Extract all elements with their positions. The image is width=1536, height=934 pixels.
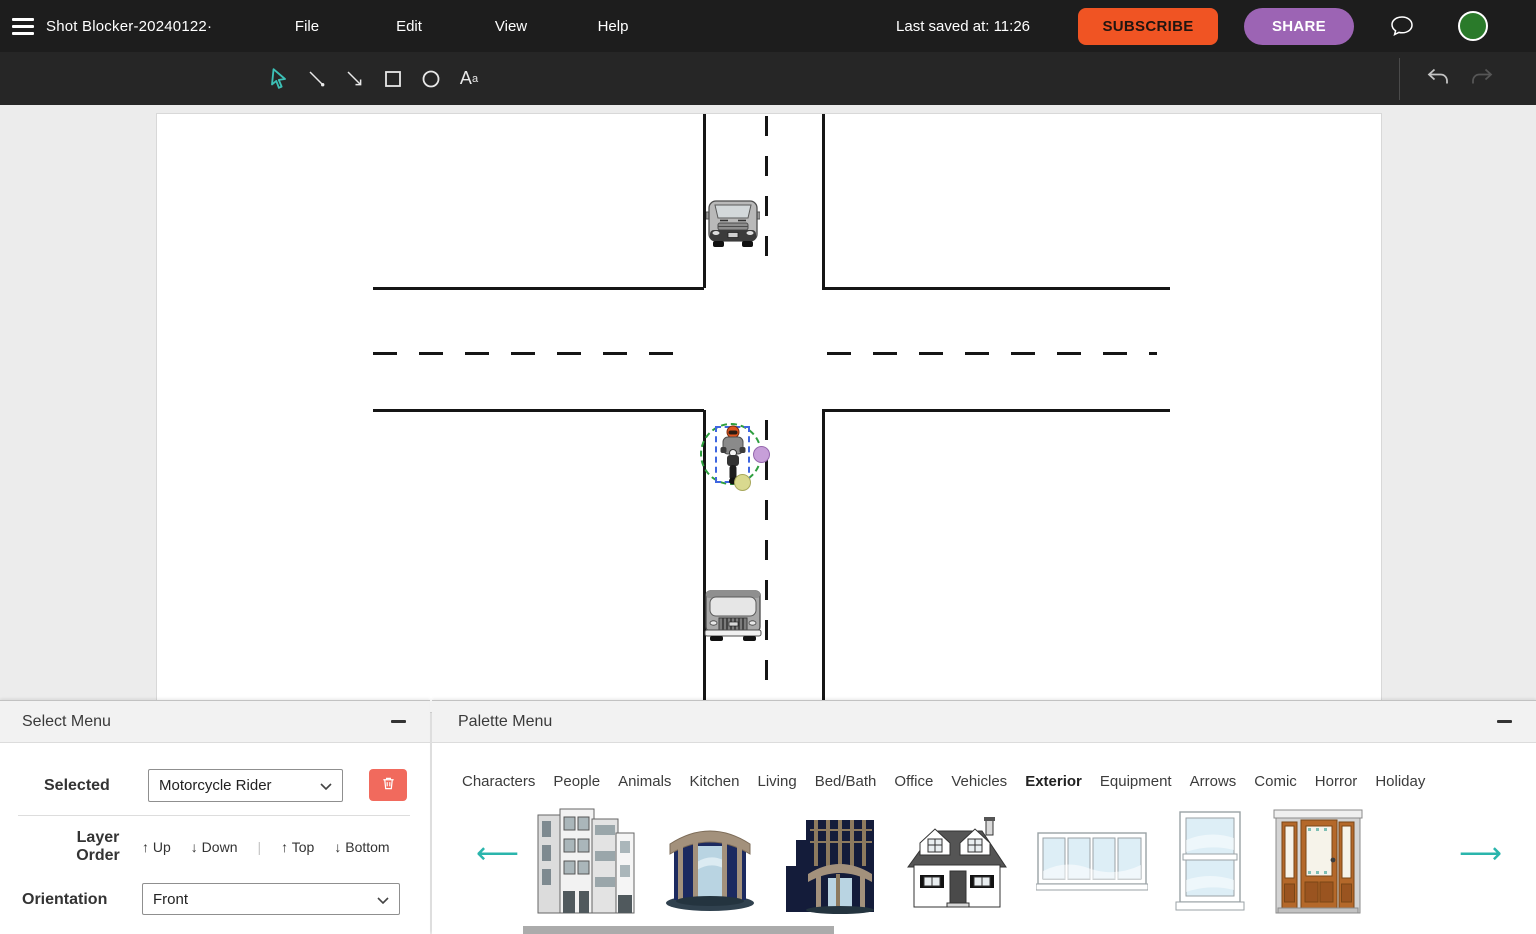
select-menu-header: Select Menu <box>0 701 430 743</box>
palette-category-bedbath[interactable]: Bed/Bath <box>815 773 877 790</box>
palette-item-art-deco-building[interactable] <box>782 808 878 914</box>
orientation-label: Orientation <box>22 891 107 909</box>
layer-order-label: Layer Order <box>68 829 128 865</box>
palette-category-arrows[interactable]: Arrows <box>1190 773 1237 790</box>
chat-bubble-icon[interactable] <box>1390 14 1416 38</box>
palette-menu-minimize-button[interactable] <box>1497 720 1512 723</box>
menu-help[interactable]: Help <box>562 18 664 35</box>
select-tool-icon[interactable] <box>266 64 292 94</box>
menu-bar: File Edit View Help <box>256 18 664 35</box>
palette-category-living[interactable]: Living <box>757 773 796 790</box>
ellipse-tool-icon[interactable] <box>418 64 444 94</box>
toolbar-divider <box>1399 58 1400 100</box>
top-bar: Shot Blocker-20240122· File Edit View He… <box>0 0 1536 52</box>
truck-object[interactable] <box>704 584 762 646</box>
selected-label: Selected <box>44 777 110 795</box>
palette-category-people[interactable]: People <box>553 773 600 790</box>
redo-icon[interactable] <box>1470 67 1496 91</box>
palette-category-comic[interactable]: Comic <box>1254 773 1297 790</box>
hamburger-menu-icon[interactable] <box>0 0 46 52</box>
palette-category-horror[interactable]: Horror <box>1315 773 1358 790</box>
palette-item-round-entrance-building[interactable] <box>664 810 756 912</box>
road-edge <box>822 409 1170 412</box>
layer-up-button[interactable]: ↑ Up <box>142 839 171 855</box>
palette-item-apartment-buildings[interactable] <box>532 807 638 915</box>
last-saved-status: Last saved at: 11:26 <box>896 18 1030 35</box>
palette-category-animals[interactable]: Animals <box>618 773 671 790</box>
select-menu-minimize-button[interactable] <box>391 720 406 723</box>
text-tool-icon[interactable]: Aa <box>456 64 482 94</box>
arrow-tool-icon[interactable] <box>342 64 368 94</box>
palette-category-vehicles[interactable]: Vehicles <box>951 773 1007 790</box>
selected-object-dropdown[interactable]: Motorcycle Rider <box>148 769 343 802</box>
palette-item-wide-window[interactable] <box>1036 831 1148 891</box>
palette-category-characters[interactable]: Characters <box>462 773 535 790</box>
subscribe-button[interactable]: SUBSCRIBE <box>1078 8 1218 45</box>
palette-category-kitchen[interactable]: Kitchen <box>689 773 739 790</box>
palette-menu-header: Palette Menu <box>432 701 1536 743</box>
road-center-dash <box>373 352 691 355</box>
selection-handle-rotate[interactable] <box>753 446 770 463</box>
selection-handle-scale[interactable] <box>734 474 751 491</box>
trash-icon <box>381 776 396 794</box>
palette-item-suburban-house[interactable] <box>904 813 1010 909</box>
layer-bottom-button[interactable]: ↓ Bottom <box>334 839 389 855</box>
palette-item-double-hung-window[interactable] <box>1174 810 1246 912</box>
palette-category-holiday[interactable]: Holiday <box>1375 773 1425 790</box>
road-edge <box>822 114 825 288</box>
chevron-down-icon <box>320 777 332 794</box>
palette-category-equipment[interactable]: Equipment <box>1100 773 1172 790</box>
palette-category-row: Characters People Animals Kitchen Living… <box>462 773 1425 790</box>
van-object[interactable] <box>706 196 760 253</box>
rectangle-tool-icon[interactable] <box>380 64 406 94</box>
palette-category-office[interactable]: Office <box>894 773 933 790</box>
layer-down-button[interactable]: ↓ Down <box>191 839 238 855</box>
road-center-dash <box>765 420 768 714</box>
palette-item-strip <box>532 801 1452 921</box>
palette-menu-panel: Palette Menu Characters People Animals K… <box>432 700 1536 934</box>
drawing-toolbar: Aa <box>0 52 1536 105</box>
menu-view[interactable]: View <box>460 18 562 35</box>
road-center-dash <box>765 116 768 276</box>
palette-scrollbar-thumb[interactable] <box>523 926 834 934</box>
palette-prev-arrow[interactable]: ⟵ <box>476 839 519 869</box>
divider: | <box>257 839 261 855</box>
palette-item-front-door[interactable] <box>1272 808 1364 914</box>
undo-icon[interactable] <box>1426 67 1452 91</box>
chevron-down-icon <box>377 891 389 908</box>
palette-next-arrow[interactable]: ⟶ <box>1459 839 1502 869</box>
road-edge <box>373 409 704 412</box>
document-title: Shot Blocker-20240122· <box>46 18 256 35</box>
palette-menu-title: Palette Menu <box>432 713 552 731</box>
orientation-dropdown[interactable]: Front <box>142 883 400 915</box>
layer-top-button[interactable]: ↑ Top <box>281 839 314 855</box>
line-tool-icon[interactable] <box>304 64 330 94</box>
divider <box>18 815 410 816</box>
select-menu-panel: Select Menu Selected Motorcycle Rider La… <box>0 700 430 934</box>
select-menu-title: Select Menu <box>0 713 111 731</box>
road-edge <box>822 410 825 714</box>
user-avatar[interactable] <box>1458 11 1488 41</box>
share-button[interactable]: SHARE <box>1244 8 1354 45</box>
menu-file[interactable]: File <box>256 18 358 35</box>
palette-category-exterior[interactable]: Exterior <box>1025 773 1082 790</box>
menu-edit[interactable]: Edit <box>358 18 460 35</box>
delete-object-button[interactable] <box>369 769 407 801</box>
road-center-dash <box>827 352 1157 355</box>
drawing-canvas[interactable] <box>156 113 1382 713</box>
road-edge <box>822 287 1170 290</box>
road-edge <box>373 287 704 290</box>
